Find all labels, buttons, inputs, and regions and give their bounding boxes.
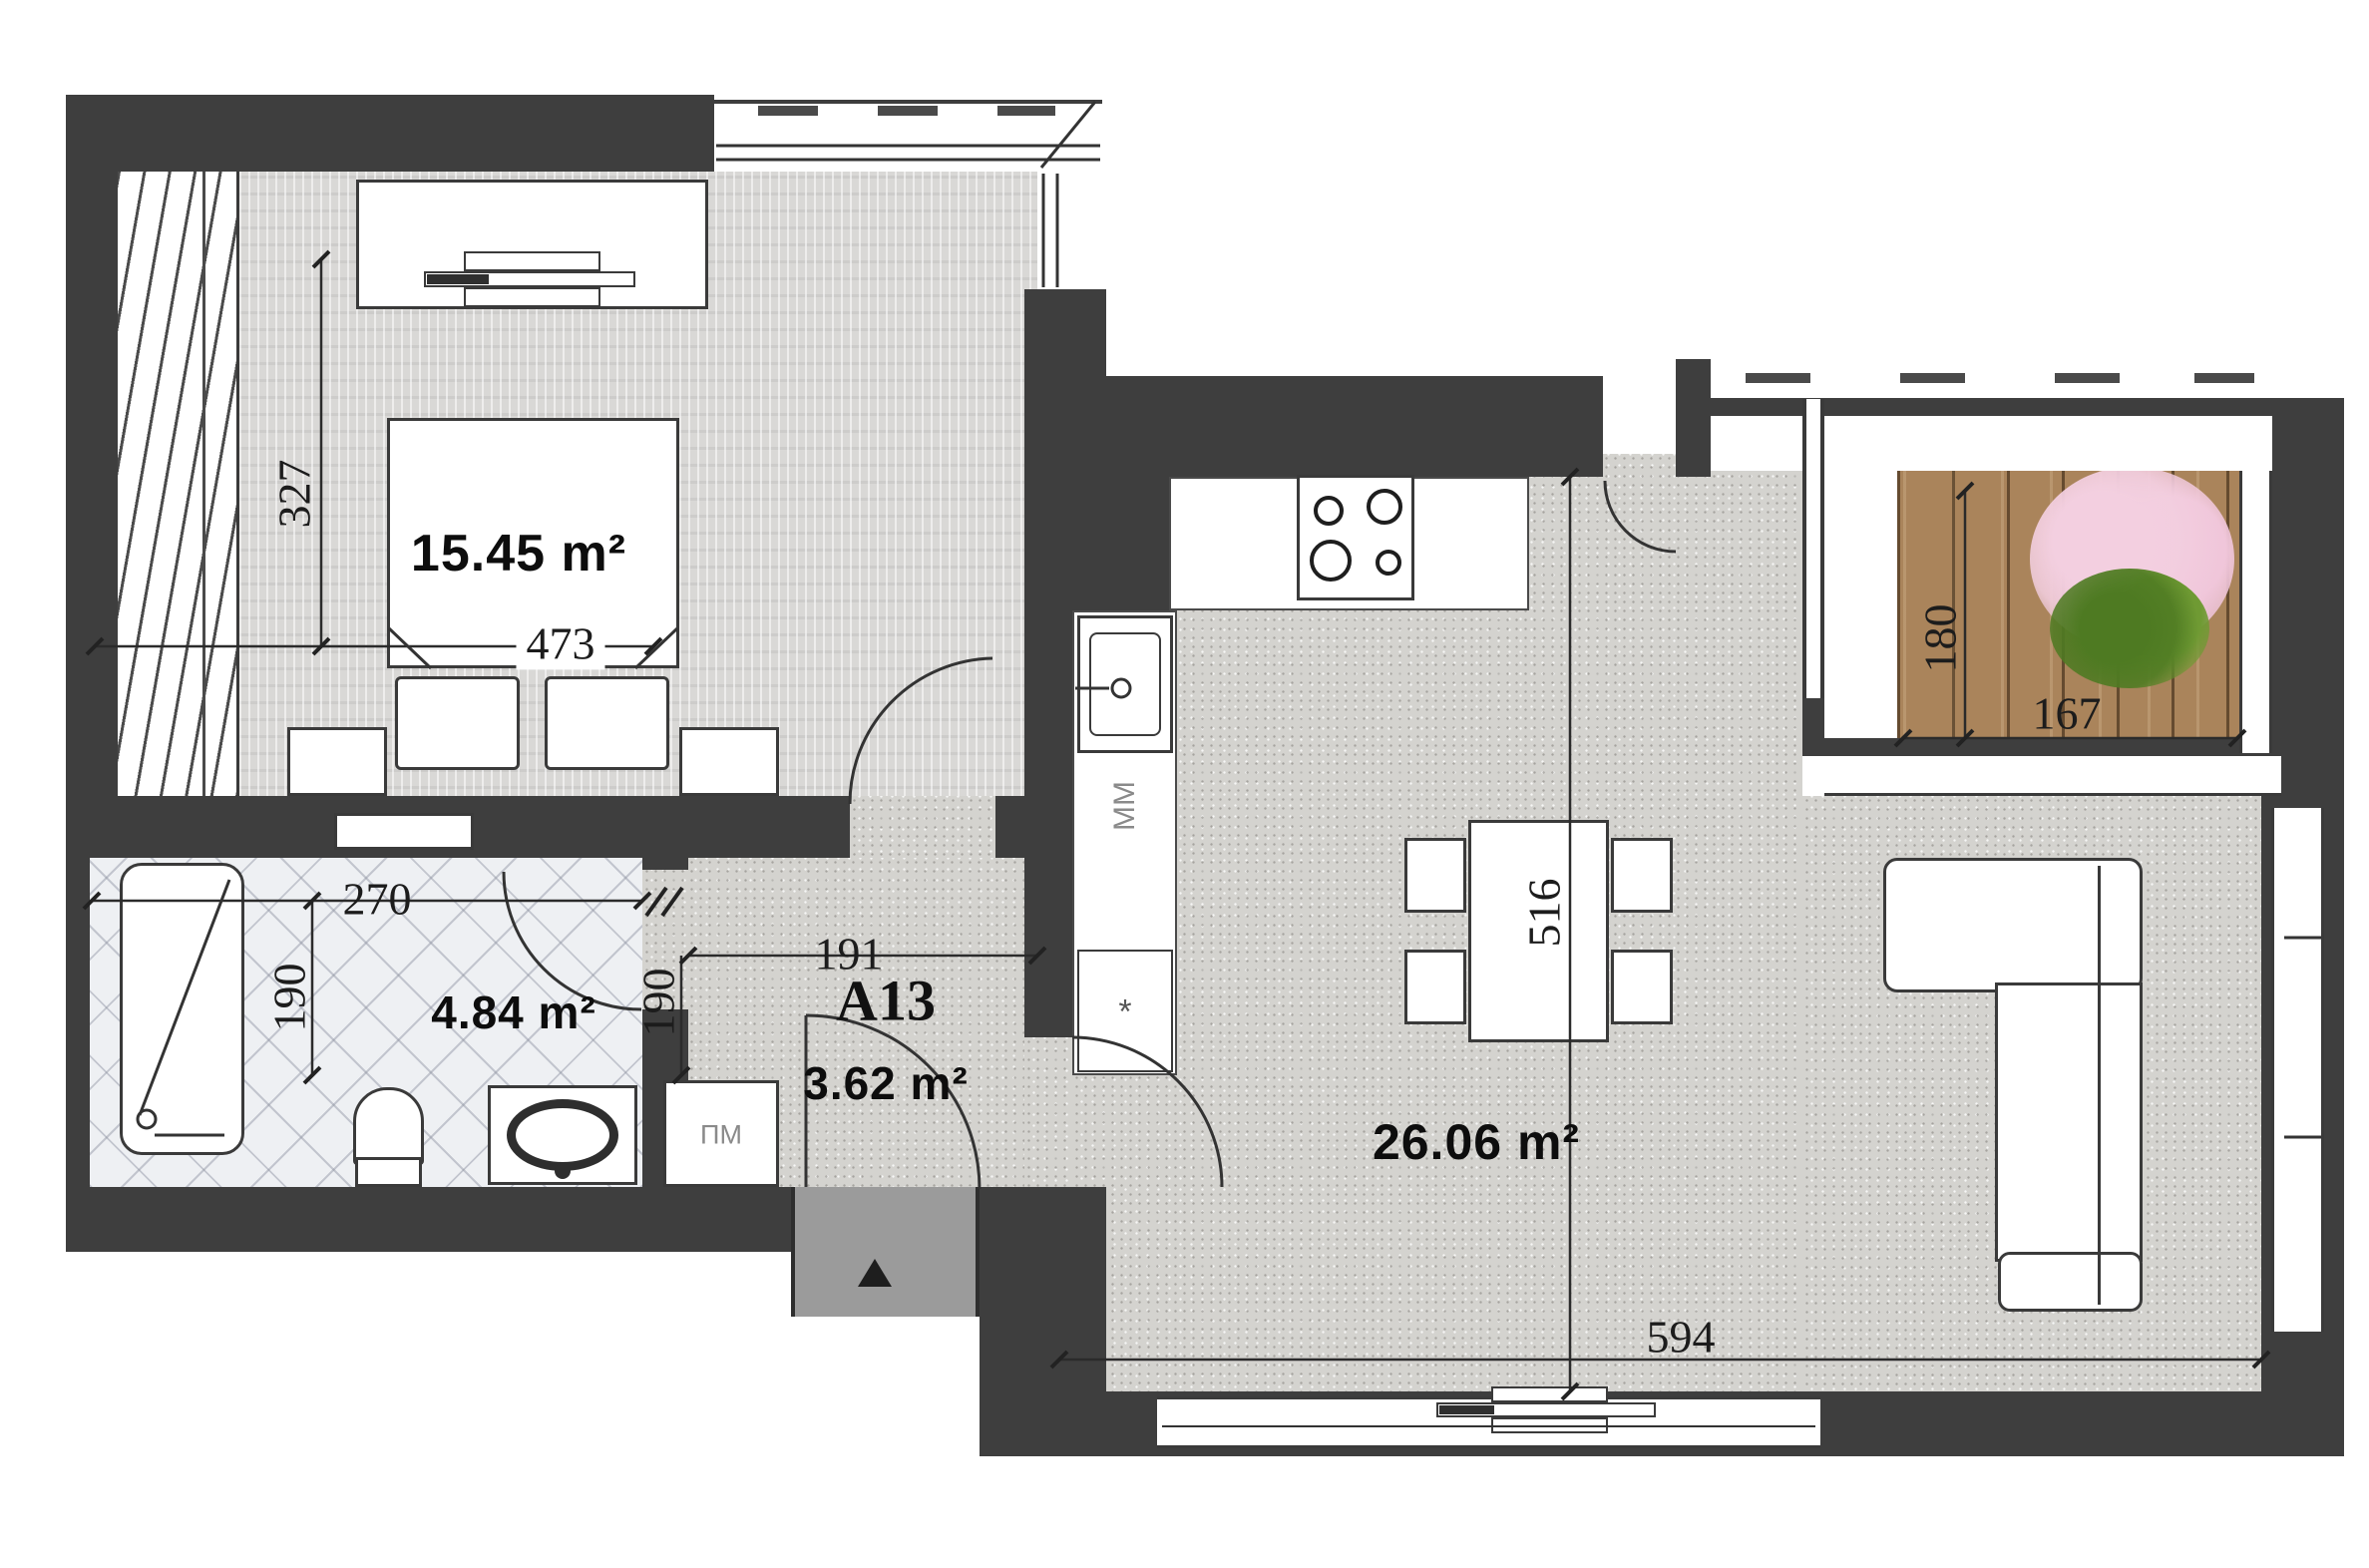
dim-living-width: 594 (1647, 1311, 1716, 1364)
bathroom-area-label: 4.84 m² (431, 985, 596, 1039)
door-arcs (504, 481, 1676, 1189)
dim-balcony-width: 167 (2033, 687, 2102, 740)
living-door-arc (1072, 1037, 1222, 1187)
bedroom-door-arc (850, 658, 992, 804)
stove-burners (1312, 491, 1400, 580)
bed-fold (389, 628, 431, 668)
corner-window-diagonal (1041, 102, 1095, 168)
dimension-lines (92, 259, 2261, 1391)
bathtub-diagonal (140, 880, 229, 1115)
bedroom-area-label: 15.45 m² (411, 524, 626, 584)
dim-bathroom-width: 270 (343, 873, 412, 926)
bathtub-drain (138, 1110, 156, 1128)
dim-hall-depth: 190 (632, 969, 685, 1037)
kitchen-faucet (1112, 679, 1130, 697)
living-area-label: 26.06 m² (1373, 1113, 1580, 1171)
hallway-area-label: 3.62 m² (803, 1056, 969, 1110)
dim-living-height: 516 (1518, 879, 1571, 948)
dimension-ticks (84, 251, 2269, 1399)
dim-bedroom-width: 473 (517, 617, 605, 670)
dim-hall-width: 191 (815, 928, 884, 980)
balcony-door-arc (1605, 481, 1676, 552)
dim-bedroom-height: 327 (268, 460, 321, 529)
dim-balcony-depth: 180 (1914, 604, 1967, 673)
dim-bathroom-depth: 190 (263, 964, 316, 1032)
bed-fold (635, 628, 677, 668)
floor-plan: ПМ ММ * (0, 0, 2369, 1568)
plan-annotations (0, 0, 2369, 1568)
detail-lines (138, 102, 2321, 1426)
